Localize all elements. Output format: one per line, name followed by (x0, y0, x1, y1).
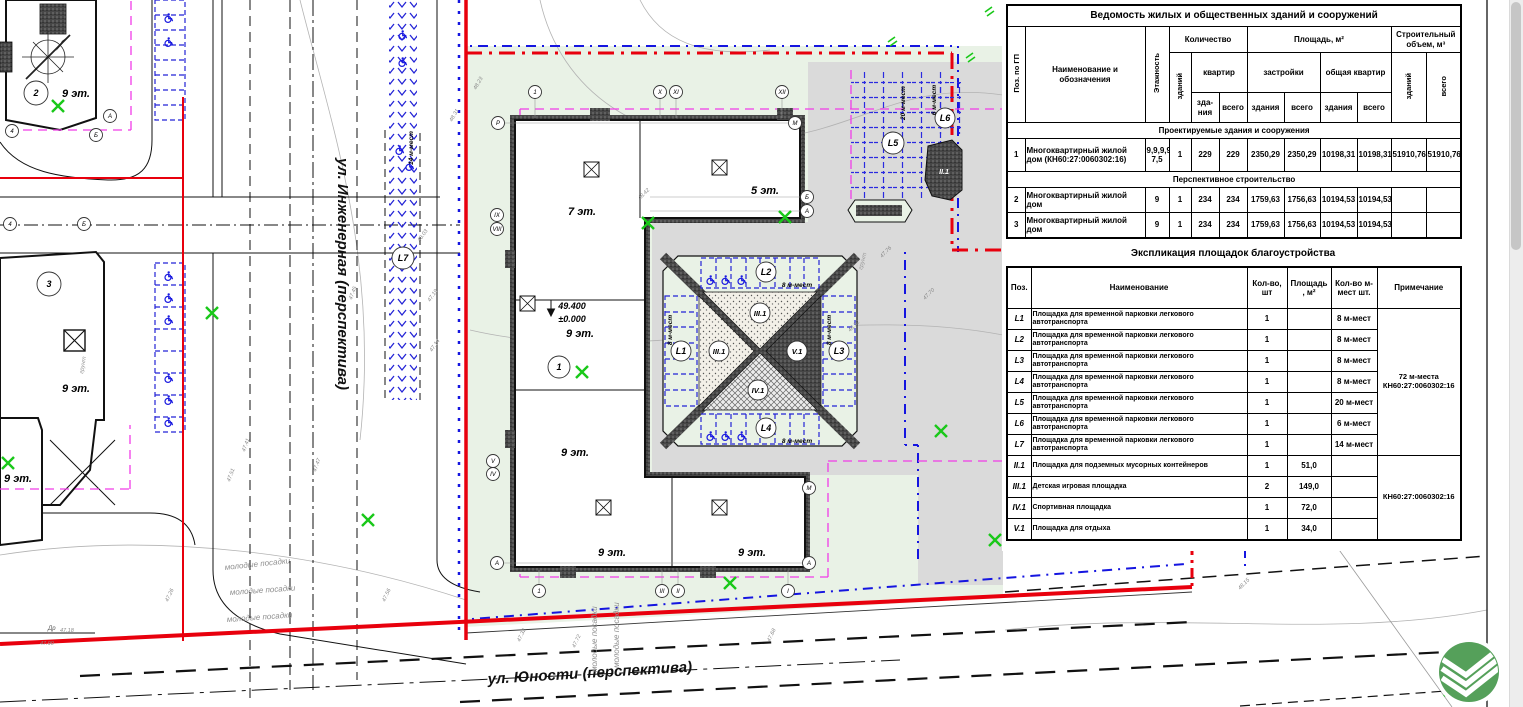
svg-text:Др: Др (47, 626, 56, 632)
svg-text:IV: IV (490, 472, 497, 478)
svg-text:48.03: 48.03 (417, 228, 430, 243)
svg-text:А: А (107, 114, 112, 120)
svg-text:L6: L6 (940, 113, 951, 123)
svg-text:9 эт.: 9 эт. (738, 547, 766, 559)
scrollbar-thumb[interactable] (1511, 2, 1521, 250)
existing-buildings: 2 9 эт. 3 9 эт. 9 эт. (0, 0, 115, 545)
svg-text:20 м-мест: 20 м-мест (900, 86, 907, 121)
svg-text:1: 1 (537, 589, 540, 595)
svg-text:VIII: VIII (492, 227, 501, 233)
svg-text:8 м-мест: 8 м-мест (782, 438, 813, 445)
svg-text:А: А (494, 561, 499, 567)
svg-text:М: М (793, 121, 798, 127)
svg-text:молодые посадки: молодые посадки (612, 602, 621, 668)
svg-text:2: 2 (32, 88, 38, 98)
note-parking: 72 м-места КН60:27:0060302:16 (1377, 309, 1461, 456)
roof-elevation: 49.400 (557, 301, 586, 311)
svg-text:6 м-мест: 6 м-мест (931, 85, 938, 116)
section-projected: Проектируемые здания и сооружения (1007, 123, 1461, 139)
landscaping-table: Поз. Наименование Кол-во, шт Площадь , м… (1006, 266, 1462, 541)
table-row: 3Многоквартирный жилой дом 91 234234 175… (1007, 213, 1461, 239)
svg-text:9 эт.: 9 эт. (561, 447, 589, 459)
svg-text:48.31: 48.31 (449, 108, 461, 123)
svg-text:47.56: 47.56 (381, 587, 393, 603)
svg-text:47.90: 47.90 (40, 641, 55, 647)
svg-text:9 эт.: 9 эт. (598, 547, 626, 559)
svg-text:9 эт.: 9 эт. (566, 328, 594, 340)
svg-text:IV.1: IV.1 (752, 386, 765, 395)
svg-text:8 м-мест: 8 м-мест (782, 282, 813, 289)
svg-text:47.14: 47.14 (429, 338, 442, 353)
svg-text:L2: L2 (761, 267, 772, 277)
svg-text:Б: Б (805, 195, 809, 201)
svg-text:3: 3 (46, 279, 51, 289)
svg-text:V.1: V.1 (792, 347, 803, 356)
svg-text:L1: L1 (676, 346, 687, 356)
street-parking-strips (155, 0, 185, 432)
svg-text:II.1: II.1 (939, 169, 949, 176)
sberbank-logo (1435, 638, 1503, 706)
svg-text:5 эт.: 5 эт. (751, 185, 779, 197)
svg-text:14 м-мест: 14 м-мест (408, 131, 415, 165)
ne-parking: L5 20 м-мест L6 6 м-мест II.1 (848, 70, 962, 222)
svg-text:47.26: 47.26 (164, 587, 176, 603)
svg-text:47.18: 47.18 (60, 628, 75, 634)
svg-text:1: 1 (556, 362, 561, 372)
zero-elevation: ±0.000 (558, 314, 585, 324)
svg-text:L4: L4 (761, 423, 772, 433)
svg-text:8 м-мест: 8 м-мест (667, 315, 674, 346)
svg-text:47.51: 47.51 (226, 468, 236, 483)
svg-text:9 эт.: 9 эт. (62, 88, 90, 100)
note-areas: КН60:27:0060302:16 (1377, 456, 1461, 541)
svg-text:II: II (676, 589, 680, 595)
svg-text:ХII: ХII (777, 90, 786, 96)
svg-text:47.19: 47.19 (427, 288, 440, 303)
table-row: 2Многоквартирный жилой дом 91 234234 175… (1007, 188, 1461, 213)
svg-text:М: М (807, 486, 812, 492)
svg-text:9 эт.: 9 эт. (4, 473, 32, 485)
section-perspective: Перспективное строительство (1007, 172, 1461, 188)
buildings-table: Ведомость жилых и общественных зданий и … (1006, 4, 1462, 239)
svg-text:ХI: ХI (672, 90, 679, 96)
svg-text:молодые посадки: молодые посадки (224, 556, 291, 572)
street-label-left: ул. Инженерная (перспектива) (334, 157, 351, 390)
svg-text:молодые посадки: молодые посадки (590, 606, 599, 672)
svg-text:8 м-мест: 8 м-мест (826, 315, 833, 346)
svg-text:III: III (659, 589, 664, 595)
table-row: II.1Площадка для подземных мусорных конт… (1007, 456, 1461, 477)
svg-text:III.1: III.1 (713, 347, 726, 356)
landscaping-table-title: Экспликация площадок благоустройства (1006, 248, 1460, 259)
svg-text:IX: IX (494, 213, 501, 219)
svg-text:Б: Б (82, 222, 86, 228)
svg-text:Б: Б (94, 133, 98, 139)
svg-text:48.15: 48.15 (1237, 577, 1252, 592)
svg-text:молодые посадки: молодые посадки (227, 610, 294, 624)
svg-text:L5: L5 (888, 138, 899, 148)
svg-text:А: А (806, 561, 811, 567)
buildings-table-title: Ведомость жилых и общественных зданий и … (1007, 5, 1461, 27)
svg-text:молодые посадки: молодые посадки (230, 583, 297, 597)
svg-text:7 эт.: 7 эт. (568, 206, 596, 218)
table-row: 1Многоквартирный жилой дом (КН60:27:0060… (1007, 139, 1461, 172)
table-row: L1Площадка для временной парковки легков… (1007, 309, 1461, 330)
paved-area-se (918, 475, 1003, 585)
svg-text:L7: L7 (398, 253, 409, 263)
svg-text:А: А (804, 209, 809, 215)
svg-text:47.47: 47.47 (312, 457, 323, 473)
parking-l7: 14 м-мест L7 (389, 0, 417, 400)
svg-text:L3: L3 (834, 346, 845, 356)
svg-text:III.1: III.1 (754, 309, 767, 318)
svg-text:9 эт.: 9 эт. (62, 383, 90, 395)
svg-text:Р: Р (496, 121, 500, 127)
drawing-viewport: 2 9 эт. 3 9 эт. 9 эт. 14 м-мест L7 (0, 0, 1523, 707)
svg-text:1: 1 (533, 90, 536, 96)
